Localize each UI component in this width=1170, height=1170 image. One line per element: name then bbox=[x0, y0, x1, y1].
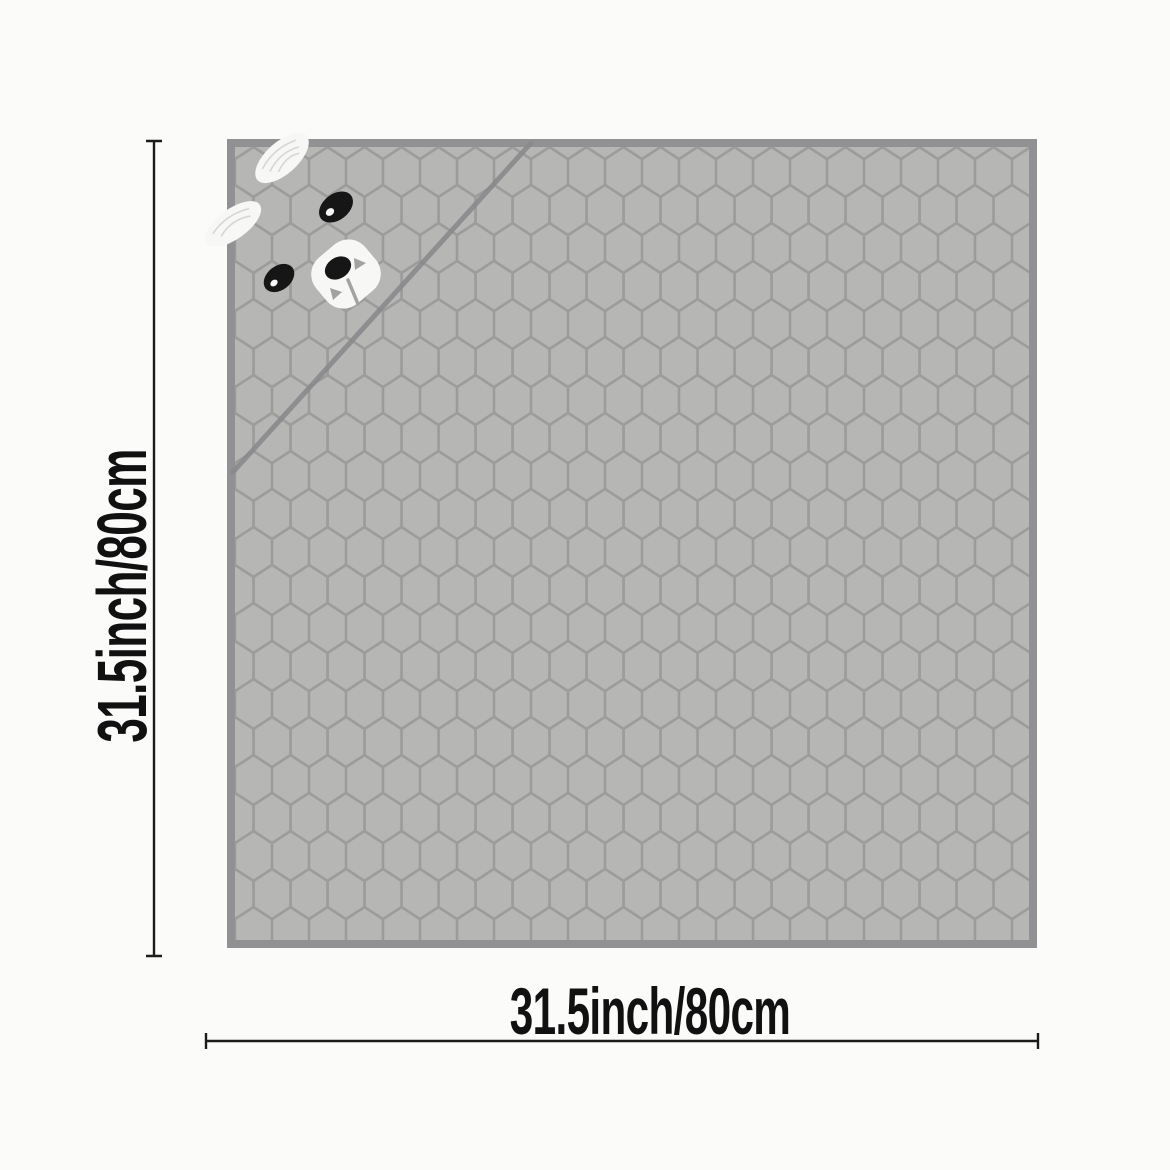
scene-canvas: 31.5inch/80cm 31.5inch/80cm bbox=[0, 0, 1170, 1170]
product-dimension-image: 31.5inch/80cm 31.5inch/80cm bbox=[0, 0, 1170, 1170]
height-label: 31.5inch/80cm bbox=[84, 449, 162, 742]
width-label: 31.5inch/80cm bbox=[510, 974, 790, 1048]
